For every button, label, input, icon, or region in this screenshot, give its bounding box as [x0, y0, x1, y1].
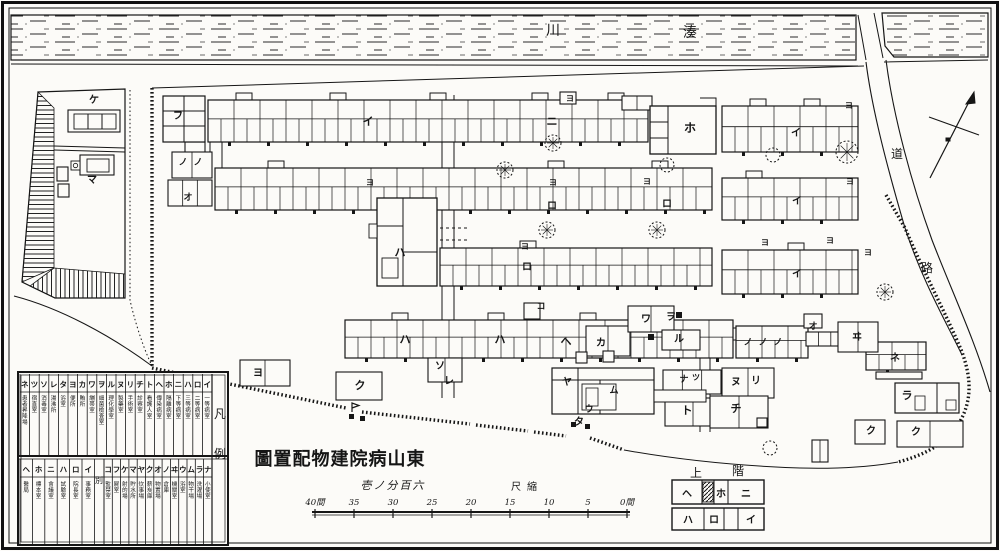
legend-kana: ヤ [138, 465, 146, 474]
map-shape [352, 403, 359, 412]
legend-desc: 試驗室 [61, 480, 67, 500]
legend-kana: イ [203, 380, 211, 389]
scale-tick-label: 25 [426, 498, 438, 508]
legend-desc: 物干場 [188, 480, 194, 500]
legend-desc: 二等病室 [195, 396, 201, 420]
building-label: ノ [743, 337, 752, 348]
pier [345, 142, 348, 146]
legend-corner-bottom: 例 [214, 447, 226, 461]
scale-tick-label: 35 [349, 498, 360, 508]
legend-kana: ヌ [117, 380, 125, 389]
pier [508, 210, 511, 214]
legend-kana: ヰ [171, 465, 179, 474]
pier [228, 142, 231, 146]
legend-desc: 傳染病室 [156, 394, 162, 420]
legend-desc: 三等病室 [185, 395, 191, 420]
pier [579, 142, 582, 146]
legend-annex-divider: 別 [95, 476, 103, 485]
boundary-wall [362, 412, 470, 424]
pier [599, 358, 602, 362]
pier [742, 152, 745, 156]
pier [756, 358, 759, 362]
building-label: ハ [495, 333, 506, 346]
building [652, 161, 668, 168]
legend-kana: ケ [121, 465, 129, 474]
building-label: イ [792, 268, 802, 280]
legend-desc: 理化學室 [108, 395, 114, 420]
building-label: イ [792, 195, 802, 207]
building [603, 351, 614, 362]
pier [618, 142, 621, 146]
building-label: ヨ [761, 237, 769, 247]
inset-title-right: 階 [732, 463, 744, 478]
pier [521, 358, 524, 362]
embankment-hatch [22, 92, 54, 282]
legend-table: ネ患者昇降場ツ宿直室ソ消毒室レ湯沸所タ浴室ヨ便所カ賄所ワ繃帯室ヲ細菌檢査室ル理化… [18, 372, 228, 545]
legend-desc: 事務室 [85, 480, 91, 500]
building-label: マ [87, 175, 97, 186]
legend-desc: 製藥室 [118, 394, 124, 414]
building-label: ヨ [845, 100, 853, 110]
pier [586, 210, 589, 214]
pier [384, 142, 387, 146]
building-label: ウ [584, 404, 593, 415]
tree-icon [763, 441, 777, 455]
pier [820, 152, 823, 156]
building-label: ヨ [643, 176, 651, 186]
barracks-row [215, 168, 712, 210]
pier [795, 358, 798, 362]
building-label: ヨ [366, 177, 374, 187]
building-label: コ [536, 302, 545, 312]
legend-desc: 賄所 [80, 394, 86, 408]
legend-kana: ヲ [98, 380, 106, 389]
building-label: レ [444, 376, 454, 387]
pier [716, 358, 719, 362]
legend-kana: ヘ [155, 380, 163, 389]
building-label: ネ [890, 352, 900, 364]
legend-desc: 診察室 [137, 394, 143, 414]
boundary-wall [534, 432, 566, 436]
building [87, 159, 109, 172]
pier [313, 210, 316, 214]
legend-desc: 屍室 [114, 481, 120, 494]
building [532, 93, 548, 100]
pier [499, 286, 502, 290]
legend-desc: 洗濯場 [197, 480, 203, 500]
legend-desc: 薪炭庫 [147, 480, 153, 500]
legend-kana: コ [104, 465, 112, 474]
tree-icon [653, 230, 657, 234]
building-label: ヨ [846, 176, 854, 186]
building-label: ツ [692, 372, 700, 382]
pier [462, 142, 465, 146]
barracks-row [722, 250, 858, 294]
legend-desc: 監禁室 [105, 480, 111, 500]
tree-icon [547, 226, 551, 230]
legend-kana: ロ [194, 380, 202, 389]
site-plan-svg: 川 湊 道 路 ケマフノノオイニヨホイヨロロヨヨヨイヨヨヨハロヨイヨコハハヘカワ… [0, 0, 1000, 551]
tree-icon [657, 230, 661, 234]
legend-kana: ワ [88, 380, 96, 389]
building [548, 161, 564, 168]
building-label: ム [609, 385, 618, 396]
tree-icon [885, 292, 889, 296]
building-label: ソ [435, 361, 445, 372]
legend-desc: 細菌檢査室 [99, 394, 105, 426]
map-shape [14, 296, 152, 366]
legend-desc: 一等病室 [204, 396, 210, 420]
legend-desc: 湯沸所 [51, 394, 57, 414]
tree-icon [841, 152, 847, 158]
legend-kana: ル [107, 380, 115, 389]
building-label: タ [574, 416, 584, 428]
building-label: ヌ [731, 376, 741, 388]
building-label: ケ [89, 94, 99, 106]
building-label: ノ [178, 157, 187, 168]
pier [404, 358, 407, 362]
scanned-site-plan-sheet: 川 湊 道 路 ケマフノノオイニヨホイヨロロヨヨヨイヨヨヨハロヨイヨコハハヘカワ… [0, 0, 1000, 551]
legend-kana: ホ [35, 465, 43, 474]
pier [235, 210, 238, 214]
legend-desc: 患者昇降場 [22, 394, 28, 426]
legend-desc: 宿直室 [32, 394, 38, 414]
building-label: ヨ [521, 241, 529, 251]
pier [694, 286, 697, 290]
building-label: ヰ [852, 331, 862, 343]
scale-tick-label: 30 [388, 498, 399, 508]
scale-unit-label: 尺縮 [511, 480, 543, 493]
legend-desc: 炊事場 [139, 480, 145, 500]
pier [540, 142, 543, 146]
building [586, 388, 598, 406]
building-label: ノ [773, 337, 782, 348]
building-label: ラ [902, 389, 913, 402]
river-band: 川 湊 [11, 13, 988, 66]
scale-tick-label: 0間 [620, 498, 635, 508]
building-label: ニ [547, 115, 558, 128]
building-label: フ [173, 110, 183, 122]
scale-tick-label: 15 [505, 498, 516, 508]
scale-bar: 40間35302520151050間 [304, 498, 635, 518]
building [57, 167, 68, 181]
legend-desc: 浴室 [180, 480, 186, 494]
building-label: ハ [395, 246, 406, 259]
building-label: オ [183, 192, 192, 203]
building [236, 93, 252, 100]
pier [742, 220, 745, 224]
legend-desc: 繃帯室 [89, 394, 95, 414]
gate-post [349, 414, 354, 419]
building-label: ヤ [562, 376, 572, 388]
pier [469, 210, 472, 214]
building-label: ヨ [253, 367, 263, 379]
legend-kana: ヨ [69, 380, 77, 389]
pier [482, 358, 485, 362]
inset-room-label: ロ [709, 515, 719, 526]
legend-desc: 隔離病室 [166, 394, 172, 420]
building-label: ヨ [549, 177, 557, 187]
boundary-wall [476, 425, 528, 431]
building-label: ワ [641, 313, 651, 325]
tree-icon [881, 292, 885, 296]
tree-icon [657, 226, 661, 230]
scale-tick-label: 5 [585, 498, 590, 508]
legend-kana: ノ [163, 465, 171, 474]
legend-desc: 倉庫 [163, 480, 169, 494]
scale-caption: 壱ノ分百六 [361, 479, 426, 492]
building [788, 243, 804, 250]
legend-kana: ニ [47, 465, 55, 474]
building-label: ロ [522, 262, 532, 273]
tree-icon [547, 230, 551, 234]
inset-stair [703, 482, 713, 502]
scale-tick-label: 10 [544, 498, 555, 508]
vent [676, 312, 682, 318]
building [330, 93, 346, 100]
pier [274, 210, 277, 214]
building [915, 396, 925, 410]
building-label: チ [731, 402, 742, 415]
legend-kana: リ [127, 380, 135, 389]
legend-kana: ヘ [22, 465, 30, 474]
building-label: ク [866, 425, 876, 437]
building [757, 418, 767, 427]
building-label: イ [791, 127, 801, 139]
tree-icon [881, 288, 885, 292]
building-label: ヨ [566, 93, 574, 103]
building [488, 313, 504, 320]
pier [560, 358, 563, 362]
inset-room-label: イ [746, 514, 756, 526]
building [268, 161, 284, 168]
legend-kana: カ [79, 380, 87, 389]
building-label: ク [355, 379, 366, 392]
legend-kana: ム [187, 465, 195, 474]
building [369, 224, 377, 238]
pier [501, 142, 504, 146]
building-label: ヨ [826, 235, 834, 245]
pier [781, 220, 784, 224]
river-label-minato: 湊 [683, 24, 697, 41]
building [430, 93, 446, 100]
legend-desc: 便所 [70, 394, 76, 408]
upper-floor-inset: ヘホニハロイ [672, 480, 764, 530]
pier [664, 210, 667, 214]
building-label: ヲ [666, 311, 676, 323]
building [74, 114, 116, 129]
legend-desc: 院長室 [73, 480, 79, 500]
legend-desc: 機關室 [172, 480, 178, 500]
building [382, 258, 398, 278]
legend-desc: 看護人室 [147, 394, 153, 420]
gate-post [360, 416, 365, 421]
building [392, 313, 408, 320]
barracks-row [440, 248, 712, 286]
building-label: ヘ [561, 335, 572, 348]
legend-desc: 貯水所 [130, 480, 136, 500]
legend-desc: 手術室 [128, 394, 134, 414]
building-label: ル [674, 334, 684, 345]
legend-kana: ク [146, 464, 154, 474]
tree-icon [553, 143, 557, 147]
building [804, 99, 820, 106]
building-label: ノ [193, 157, 202, 168]
boundary-wall [590, 438, 624, 450]
pier [742, 294, 745, 298]
legend-kana: ウ [179, 465, 187, 474]
building-label: ロ [662, 199, 672, 210]
tree-icon [549, 143, 553, 147]
building [576, 352, 587, 363]
tree-icon [543, 230, 547, 234]
barracks-row [722, 106, 858, 152]
pier [638, 358, 641, 362]
map-shape [624, 450, 898, 468]
pier [703, 210, 706, 214]
legend-kana: ハ [184, 380, 192, 389]
pier [306, 142, 309, 146]
legend-kana: チ [136, 380, 144, 389]
road-label-michi: 道 [891, 147, 903, 161]
building-label: カ [596, 337, 606, 349]
building-label: ナ [679, 374, 688, 385]
gate-post [585, 424, 590, 429]
pier [460, 286, 463, 290]
legend-kana: レ [50, 380, 58, 389]
legend-kana: ト [146, 380, 154, 389]
legend-desc: 下等病室 [176, 395, 182, 420]
building-label: ホ [684, 121, 696, 135]
legend-kana: ナ [204, 465, 212, 474]
building [71, 161, 80, 170]
legend-kana: ホ [165, 380, 173, 389]
pier [538, 286, 541, 290]
building [946, 400, 956, 410]
building-label: イ [363, 115, 374, 128]
inset-title-left: 上 [690, 466, 702, 480]
page-title: 圖置配物建院病山東 [255, 448, 426, 470]
legend-kana: ニ [175, 380, 183, 389]
legend-desc: 消毒室 [41, 394, 47, 414]
inset-room-label: ホ [716, 488, 726, 500]
building [876, 372, 922, 379]
legend-kana: イ [84, 465, 92, 474]
legend-desc: 射的場 [122, 480, 128, 500]
legend-corner-top: 凡 [214, 407, 226, 421]
barracks-row [722, 178, 858, 220]
building-label: オ [808, 321, 817, 332]
legend-kana: ハ [60, 465, 68, 474]
barracks-row [208, 100, 648, 142]
pier [781, 152, 784, 156]
legend-kana: タ [59, 379, 67, 389]
map-shape [130, 90, 152, 366]
legend-desc: 物置場 [155, 480, 161, 500]
pier [655, 286, 658, 290]
building [58, 184, 69, 197]
tree-icon [885, 288, 889, 292]
legend-kana: フ [113, 465, 121, 474]
inset-room-label: ヘ [682, 489, 692, 500]
map-shape [152, 66, 864, 88]
scale-tick-label: 40間 [304, 498, 326, 508]
legend-desc: 小使室 [205, 480, 211, 500]
pier [365, 358, 368, 362]
inset-room-label: ニ [741, 489, 751, 500]
building-label: ハ [400, 333, 411, 346]
legend-kana: ロ [72, 465, 80, 474]
pier [781, 294, 784, 298]
building-label: ロ [547, 201, 557, 212]
legend-kana: ツ [31, 380, 39, 389]
legend-desc: 會議室 [48, 480, 54, 500]
river-label-kawa: 川 [546, 23, 560, 39]
legend-kana: ネ [21, 380, 29, 389]
building [750, 99, 766, 106]
building [580, 313, 596, 320]
legend-kana: ラ [196, 465, 204, 474]
building-label: ヨ [864, 247, 872, 257]
pier [616, 286, 619, 290]
legend-kana: マ [129, 465, 137, 474]
legend-desc: 標本室 [36, 480, 42, 500]
legend-desc: 醫局 [23, 481, 29, 494]
building-label: ク [911, 426, 921, 438]
legend-kana: オ [154, 465, 162, 474]
vent [648, 334, 654, 340]
pier [423, 142, 426, 146]
legend-desc: 浴室 [60, 394, 66, 408]
north-arrow-icon [929, 92, 979, 178]
tree-icon [653, 226, 657, 230]
pier [577, 286, 580, 290]
building-label: ノ [758, 337, 767, 348]
pier [820, 220, 823, 224]
pier [267, 142, 270, 146]
pier [625, 210, 628, 214]
building-label: ト [682, 404, 693, 417]
building [654, 390, 706, 402]
tree-icon [543, 226, 547, 230]
building-label: リ [751, 375, 761, 387]
inset-room-label: ハ [683, 515, 693, 526]
pier [352, 210, 355, 214]
scale-tick-label: 20 [465, 498, 477, 508]
pier [820, 294, 823, 298]
legend-kana: ソ [40, 380, 48, 389]
building [746, 171, 762, 178]
tree-icon [847, 152, 853, 158]
pier [677, 358, 680, 362]
